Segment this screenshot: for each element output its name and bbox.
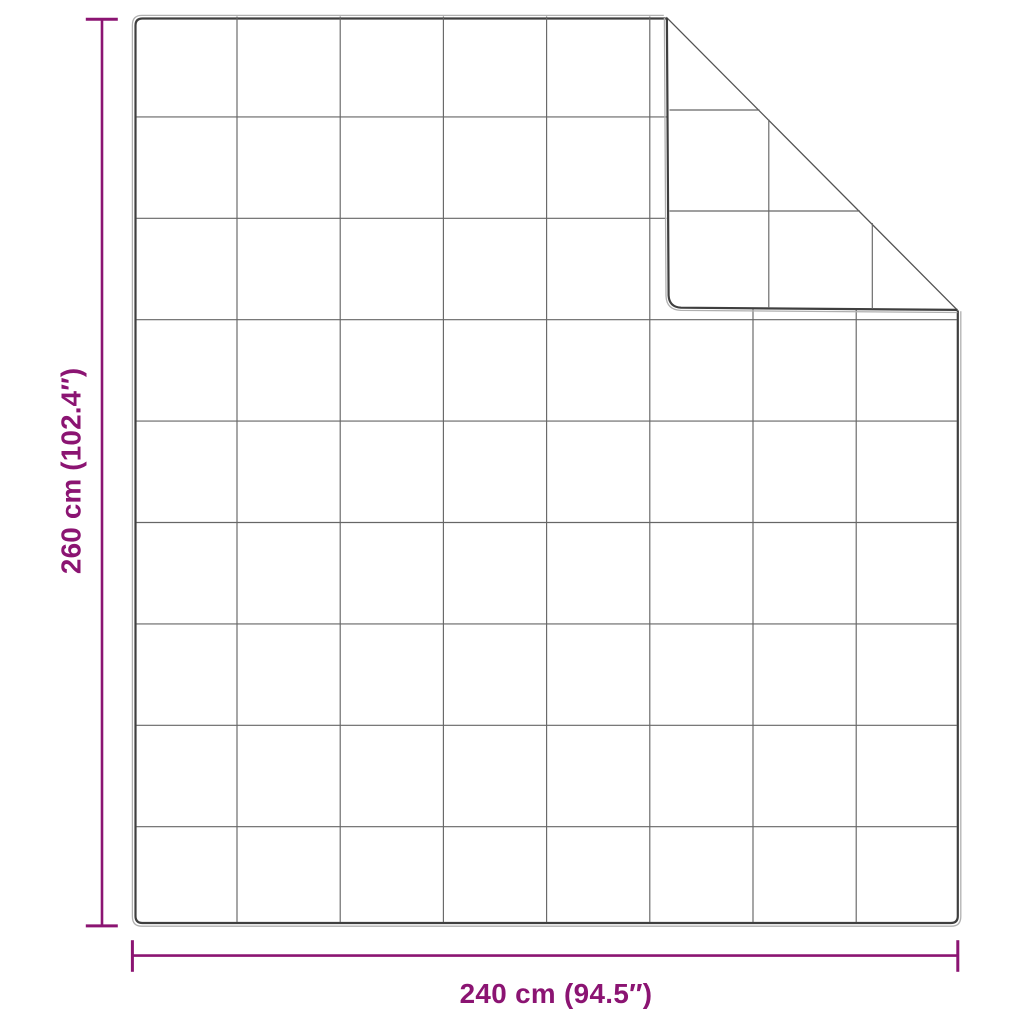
svg-text:240 cm (94.5″): 240 cm (94.5″)	[460, 978, 653, 1009]
svg-text:260 cm (102.4″): 260 cm (102.4″)	[56, 368, 87, 574]
